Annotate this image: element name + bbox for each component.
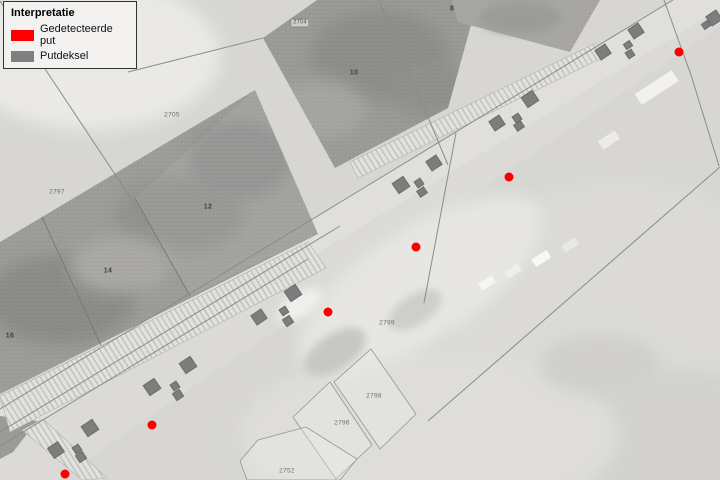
manhole-cover-marker: [284, 284, 303, 303]
detected-well-marker: [505, 173, 514, 182]
legend-swatch-manhole-cover: [11, 51, 34, 62]
manhole-cover-marker: [521, 90, 540, 109]
parcel-number-label: 2799: [379, 320, 395, 327]
legend-title: Interpretatie: [11, 7, 129, 19]
legend-swatch-detected-well: [11, 30, 34, 41]
detected-well-marker: [148, 421, 157, 430]
detected-well-marker: [61, 470, 70, 479]
legend-box: Interpretatie Gedetecteerde putPutdeksel: [3, 1, 137, 69]
parcel-number-label: 2752: [279, 468, 295, 475]
manhole-cover-marker: [594, 43, 611, 60]
detected-well-marker: [675, 48, 684, 57]
parcel-number-label: 2797: [49, 189, 65, 196]
parcel-number-label: 2705: [164, 112, 180, 119]
building-number-label: 16: [6, 333, 14, 340]
manhole-cover-marker: [81, 419, 100, 438]
legend-rows: Gedetecteerde putPutdeksel: [11, 23, 129, 62]
detected-well-marker: [412, 243, 421, 252]
parcel-number-label: 2798: [366, 393, 382, 400]
map-canvas: 8101214162704270527972799279827962752 In…: [0, 0, 720, 480]
manhole-cover-marker: [47, 441, 65, 459]
parcel-number-label: 2704: [290, 19, 309, 28]
parcel-number-label: 2796: [334, 420, 350, 427]
manhole-cover-marker: [392, 176, 411, 195]
building-number-label: 12: [204, 204, 212, 211]
detected-well-marker: [324, 308, 333, 317]
building-number-label: 10: [350, 70, 358, 77]
manhole-cover-marker: [425, 154, 442, 171]
building-number-label: 8: [450, 6, 454, 13]
building-number-label: 14: [104, 268, 112, 275]
manhole-cover-marker: [179, 356, 198, 375]
manhole-cover-marker: [143, 378, 162, 397]
legend-label: Gedetecteerde put: [40, 23, 129, 47]
marker-layer: 8101214162704270527972799279827962752: [0, 0, 720, 480]
manhole-cover-marker: [250, 308, 267, 325]
legend-item-detected-well: Gedetecteerde put: [11, 23, 129, 47]
manhole-cover-marker: [488, 114, 505, 131]
legend-item-manhole-cover: Putdeksel: [11, 50, 129, 62]
legend-label: Putdeksel: [40, 50, 88, 62]
manhole-cover-marker: [627, 22, 644, 39]
manhole-cover-marker: [282, 315, 294, 327]
